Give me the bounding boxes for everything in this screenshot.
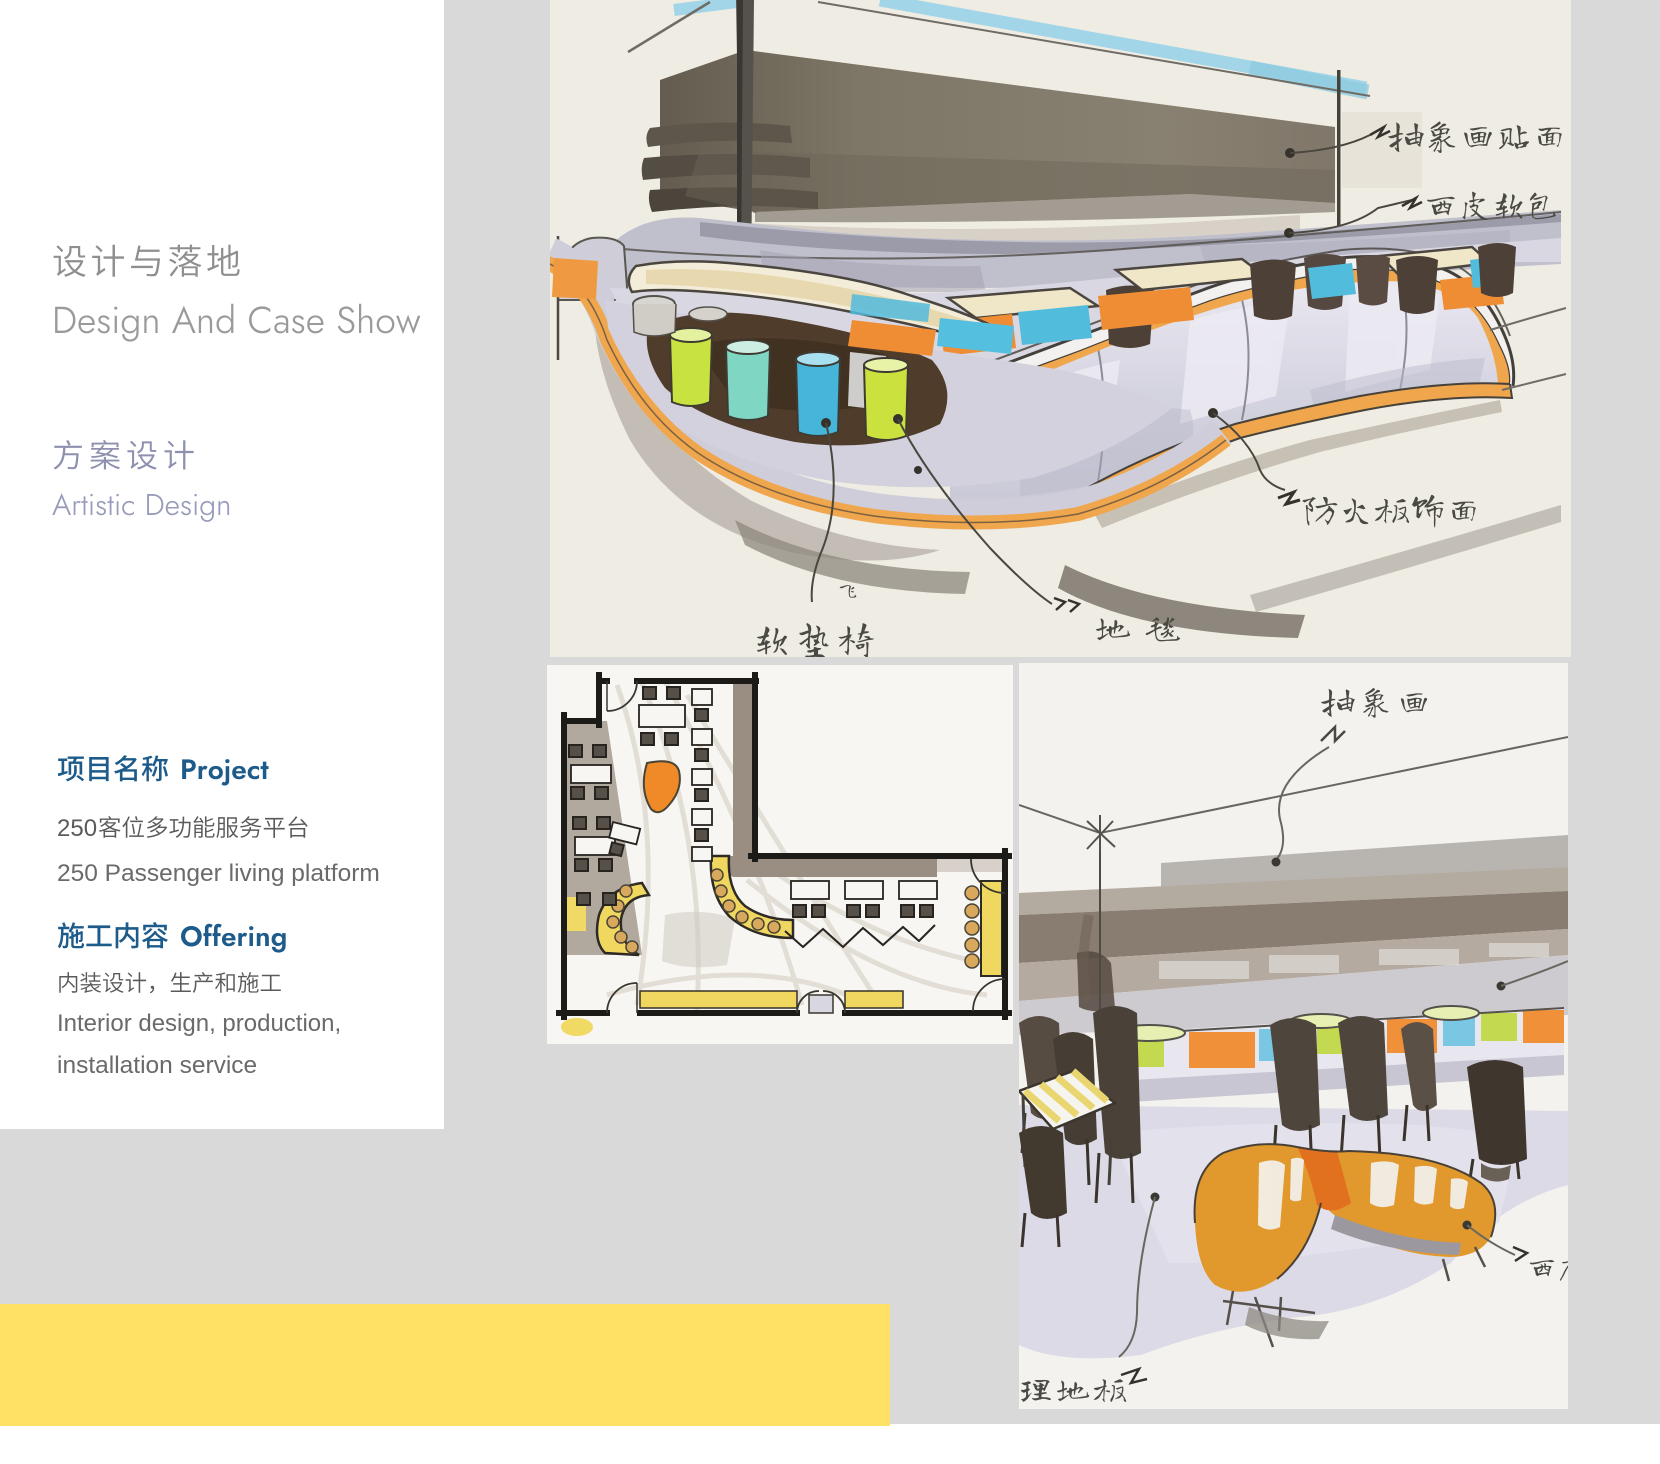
svg-text:250: 250 bbox=[57, 815, 97, 842]
svg-text:250 Passenger living platform: 250 Passenger living platform bbox=[57, 860, 380, 887]
svg-text:Interior design, production,: Interior design, production, bbox=[57, 1010, 341, 1037]
svg-text:installation service: installation service bbox=[57, 1052, 257, 1079]
